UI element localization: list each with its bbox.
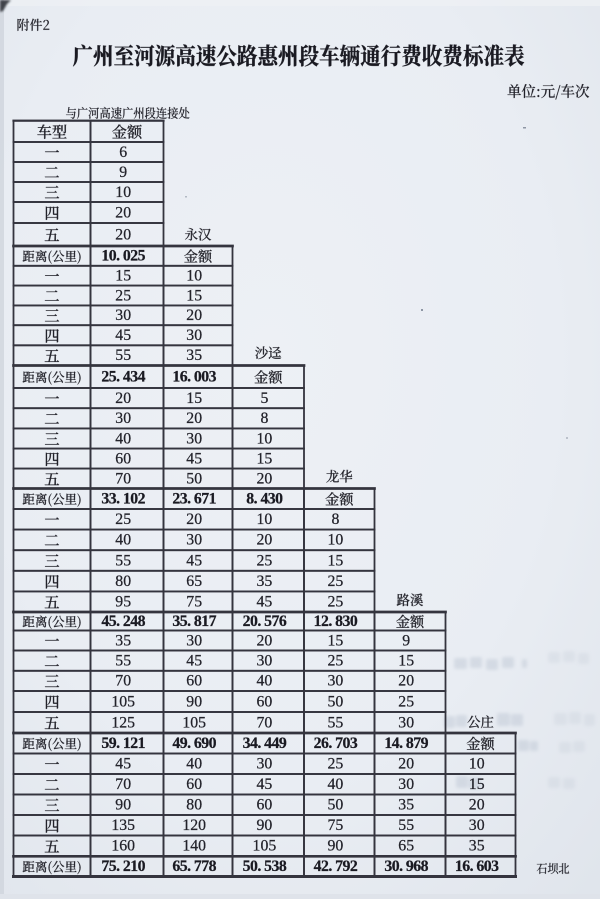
svg-text:50: 50	[328, 693, 344, 710]
svg-text:15: 15	[115, 268, 131, 285]
svg-text:33. 102: 33. 102	[101, 491, 145, 508]
svg-text:45: 45	[186, 450, 202, 467]
svg-text:90: 90	[115, 797, 131, 814]
svg-text:10: 10	[257, 511, 273, 528]
svg-text:15: 15	[186, 287, 202, 304]
svg-text:75: 75	[186, 594, 202, 611]
svg-text:45: 45	[257, 776, 273, 793]
svg-text:90: 90	[328, 838, 344, 855]
svg-text:70: 70	[115, 673, 131, 690]
svg-text:20: 20	[257, 532, 273, 549]
svg-text:105: 105	[182, 714, 206, 731]
svg-text:60: 60	[186, 673, 202, 690]
svg-text:25: 25	[328, 653, 344, 670]
svg-text:25: 25	[115, 511, 131, 528]
svg-text:65. 778: 65. 778	[172, 858, 216, 875]
svg-text:16. 003: 16. 003	[172, 369, 216, 386]
svg-text:80: 80	[186, 797, 202, 814]
svg-text:60: 60	[115, 450, 131, 467]
svg-text:10: 10	[328, 532, 344, 549]
svg-text:30: 30	[186, 430, 202, 447]
svg-text:40: 40	[115, 430, 131, 447]
svg-text:20: 20	[115, 226, 131, 243]
svg-text:65: 65	[398, 838, 414, 855]
svg-text:20: 20	[186, 511, 202, 528]
svg-text:10. 025: 10. 025	[101, 248, 145, 265]
svg-text:25: 25	[328, 756, 344, 773]
svg-text:45: 45	[257, 594, 273, 611]
svg-text:35: 35	[257, 573, 273, 590]
svg-text:40: 40	[186, 756, 202, 773]
svg-text:35. 817: 35. 817	[172, 613, 216, 630]
svg-text:23. 671: 23. 671	[172, 491, 216, 508]
svg-text:45. 248: 45. 248	[101, 613, 145, 630]
svg-text:30: 30	[257, 756, 273, 773]
svg-text:20. 576: 20. 576	[243, 613, 287, 630]
svg-text:120: 120	[182, 817, 206, 834]
svg-text:10: 10	[115, 184, 131, 201]
svg-text:20: 20	[186, 410, 202, 427]
svg-text:55: 55	[115, 552, 131, 569]
svg-text:140: 140	[182, 838, 206, 855]
svg-text:50: 50	[186, 470, 202, 487]
svg-text:95: 95	[115, 594, 131, 611]
svg-text:42. 792: 42. 792	[314, 858, 358, 875]
svg-text:35: 35	[115, 632, 131, 649]
svg-text:8: 8	[331, 511, 339, 528]
svg-text:40: 40	[257, 673, 273, 690]
svg-text:90: 90	[186, 693, 202, 710]
svg-text:10: 10	[186, 268, 202, 285]
svg-text:30: 30	[257, 653, 273, 670]
svg-text:50: 50	[328, 797, 344, 814]
svg-text:49. 690: 49. 690	[172, 735, 216, 752]
svg-text:20: 20	[398, 756, 414, 773]
svg-text:30: 30	[186, 632, 202, 649]
svg-text:20: 20	[469, 797, 485, 814]
svg-text:55: 55	[328, 714, 344, 731]
svg-text:10: 10	[469, 756, 485, 773]
svg-text:6: 6	[119, 144, 127, 161]
svg-text:20: 20	[398, 673, 414, 690]
svg-text:60: 60	[257, 693, 273, 710]
svg-text:90: 90	[257, 817, 273, 834]
svg-text:8. 430: 8. 430	[246, 491, 283, 508]
svg-text:160: 160	[111, 838, 135, 855]
svg-text:20: 20	[186, 307, 202, 324]
svg-text:10: 10	[257, 430, 273, 447]
svg-text:15: 15	[257, 450, 273, 467]
svg-text:15: 15	[328, 552, 344, 569]
svg-text:50. 538: 50. 538	[243, 858, 287, 875]
svg-text:30: 30	[328, 673, 344, 690]
svg-text:12. 830: 12. 830	[314, 613, 358, 630]
svg-text:70: 70	[115, 470, 131, 487]
svg-text:20: 20	[115, 204, 131, 221]
svg-text:75. 210: 75. 210	[101, 858, 145, 875]
svg-text:45: 45	[186, 653, 202, 670]
svg-text:30: 30	[115, 307, 131, 324]
svg-text:45: 45	[115, 756, 131, 773]
svg-text:30: 30	[115, 410, 131, 427]
svg-text:16. 603: 16. 603	[455, 858, 499, 875]
svg-text:75: 75	[328, 817, 344, 834]
svg-text:25: 25	[257, 552, 273, 569]
svg-text:15: 15	[398, 653, 414, 670]
svg-text:60: 60	[186, 776, 202, 793]
svg-text:125: 125	[111, 714, 135, 731]
svg-text:59. 121: 59. 121	[101, 735, 145, 752]
svg-text:65: 65	[186, 573, 202, 590]
svg-text:40: 40	[328, 776, 344, 793]
svg-text:20: 20	[257, 632, 273, 649]
svg-text:30: 30	[186, 532, 202, 549]
svg-text:20: 20	[257, 470, 273, 487]
svg-text:5: 5	[260, 390, 268, 407]
svg-text:30: 30	[469, 817, 485, 834]
svg-text:9: 9	[119, 164, 127, 181]
svg-text:9: 9	[402, 632, 410, 649]
svg-text:55: 55	[398, 817, 414, 834]
svg-text:80: 80	[115, 573, 131, 590]
svg-text:45: 45	[186, 552, 202, 569]
svg-text:30. 968: 30. 968	[384, 858, 428, 875]
svg-text:8: 8	[260, 410, 268, 427]
svg-text:26. 703: 26. 703	[314, 735, 358, 752]
svg-text:55: 55	[115, 347, 131, 364]
svg-text:45: 45	[115, 327, 131, 344]
svg-text:15: 15	[186, 390, 202, 407]
svg-text:60: 60	[257, 797, 273, 814]
svg-text:15: 15	[328, 632, 344, 649]
svg-text:40: 40	[115, 532, 131, 549]
svg-text:15: 15	[469, 776, 485, 793]
svg-text:135: 135	[111, 817, 135, 834]
svg-text:34. 449: 34. 449	[243, 735, 287, 752]
svg-text:30: 30	[398, 776, 414, 793]
svg-text:25: 25	[115, 287, 131, 304]
svg-text:25. 434: 25. 434	[101, 369, 145, 386]
svg-text:25: 25	[328, 594, 344, 611]
svg-text:25: 25	[398, 693, 414, 710]
svg-text:25: 25	[328, 573, 344, 590]
svg-text:35: 35	[186, 347, 202, 364]
svg-text:35: 35	[469, 838, 485, 855]
svg-text:35: 35	[398, 797, 414, 814]
svg-text:70: 70	[257, 714, 273, 731]
svg-text:55: 55	[115, 653, 131, 670]
svg-text:105: 105	[111, 693, 135, 710]
svg-text:14. 879: 14. 879	[384, 735, 428, 752]
svg-text:105: 105	[253, 838, 277, 855]
svg-text:70: 70	[115, 776, 131, 793]
svg-text:30: 30	[186, 327, 202, 344]
svg-text:30: 30	[398, 714, 414, 731]
svg-text:20: 20	[115, 390, 131, 407]
